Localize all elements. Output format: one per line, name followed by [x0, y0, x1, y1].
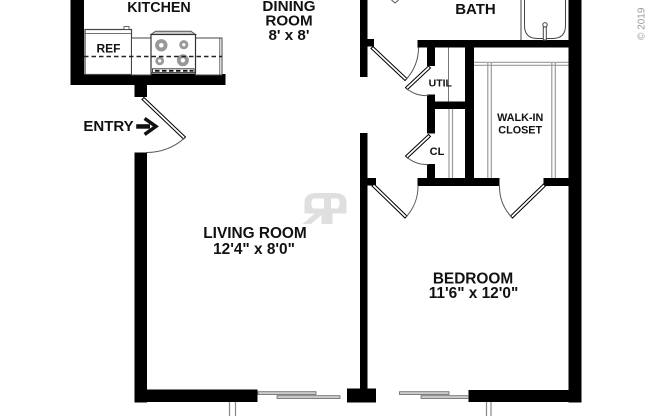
svg-text:CLOSET: CLOSET — [498, 124, 542, 136]
svg-text:CL: CL — [430, 146, 445, 158]
svg-text:BATH: BATH — [455, 1, 496, 18]
svg-text:UTIL: UTIL — [429, 78, 453, 90]
svg-text:WALK-IN: WALK-IN — [497, 112, 543, 124]
svg-text:ENTRY: ENTRY — [83, 118, 133, 135]
svg-text:11'6" x 12'0": 11'6" x 12'0" — [429, 285, 519, 302]
svg-text:LIVING ROOM: LIVING ROOM — [203, 225, 306, 242]
svg-text:REF: REF — [97, 42, 121, 56]
svg-text:12'4" x 8'0": 12'4" x 8'0" — [213, 241, 295, 258]
svg-text:8' x 8': 8' x 8' — [268, 27, 309, 44]
svg-text:© 2019: © 2019 — [637, 7, 648, 40]
svg-text:KITCHEN: KITCHEN — [127, 0, 191, 16]
